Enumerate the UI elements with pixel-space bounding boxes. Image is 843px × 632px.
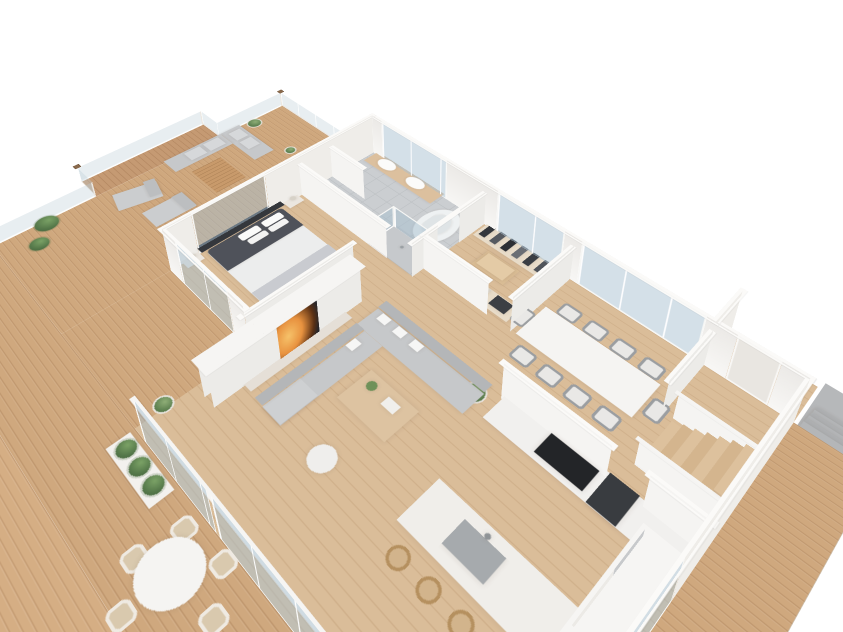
isometric-scene [0, 0, 843, 632]
floor-plan-render [0, 0, 843, 632]
house-plan [0, 0, 843, 515]
